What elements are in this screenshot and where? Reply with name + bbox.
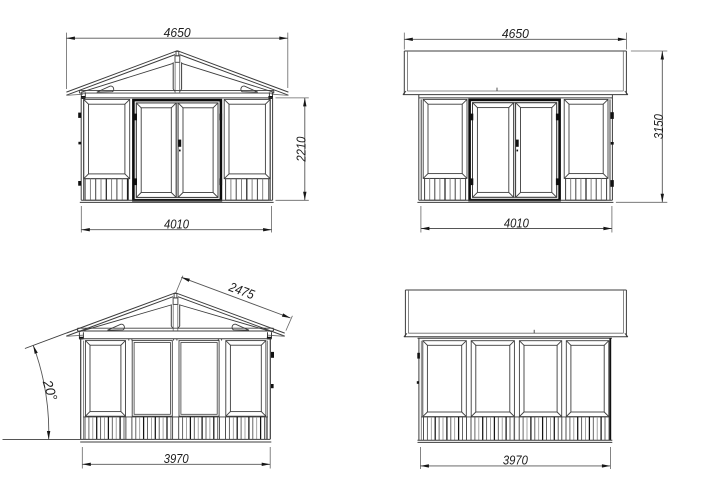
svg-text:4010: 4010 [504,215,530,230]
svg-text:4650: 4650 [164,25,192,40]
svg-text:4650: 4650 [502,26,530,41]
svg-text:3970: 3970 [164,451,190,466]
svg-text:3970: 3970 [503,453,529,468]
svg-text:3150: 3150 [651,114,666,140]
svg-text:2210: 2210 [294,136,309,162]
svg-text:4010: 4010 [164,217,190,232]
